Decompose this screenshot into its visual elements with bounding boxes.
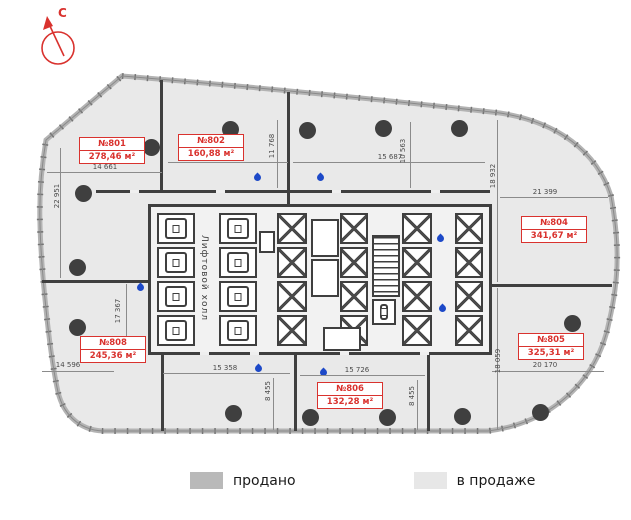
elevator-shaft-icon xyxy=(455,247,483,278)
door-opening xyxy=(250,352,259,355)
dimension-label: 22 951 xyxy=(53,161,61,231)
dimension-line xyxy=(300,375,425,376)
unit-number: №801 xyxy=(80,138,144,151)
unit-label-805[interactable]: №805 325,31 м² xyxy=(518,333,584,360)
wall-802-804 xyxy=(287,92,290,204)
service-room xyxy=(311,259,339,297)
door-opening xyxy=(130,190,139,193)
dimension-line xyxy=(417,380,418,430)
dimension-label: 18 059 xyxy=(494,326,502,396)
column-dot xyxy=(69,319,86,336)
column-dot xyxy=(454,408,471,425)
stairs xyxy=(372,235,400,297)
elevator-core: Лифтовой холл xyxy=(148,204,492,355)
door-opening xyxy=(340,352,349,355)
dimension-label: 21 399 xyxy=(495,188,595,196)
elevator-shaft-icon xyxy=(277,281,307,312)
legend-item-for-sale: в продаже xyxy=(414,472,536,489)
elevator-shaft-icon xyxy=(402,315,432,346)
dimension-label: 11 768 xyxy=(268,116,276,176)
unit-area: 278,46 м² xyxy=(80,151,144,163)
unit-label-802[interactable]: №802 160,88 м² xyxy=(178,134,244,161)
dimension-label: 20 170 xyxy=(495,361,595,369)
unit-label-808[interactable]: №808 245,36 м² xyxy=(80,336,146,363)
unit-area: 245,36 м² xyxy=(81,350,145,362)
wall-801-808 xyxy=(42,280,150,283)
elevator-car-icon xyxy=(219,247,257,278)
dimension-label: 15 358 xyxy=(180,364,270,372)
unit-label-806[interactable]: №806 132,28 м² xyxy=(317,382,383,409)
unit-area: 132,28 м² xyxy=(318,396,382,408)
wall-801-802 xyxy=(160,80,163,192)
dimension-line xyxy=(497,120,498,282)
elevator-shaft-icon xyxy=(277,247,307,278)
dimension-line xyxy=(500,197,608,198)
elevator-car-icon xyxy=(157,213,195,244)
dimension-line xyxy=(492,371,604,372)
column-dot xyxy=(75,185,92,202)
dimension-line xyxy=(273,378,274,430)
elevator-shaft-icon xyxy=(402,281,432,312)
unit-label-804[interactable]: №804 341,67 м² xyxy=(521,216,587,243)
elevator-car-icon xyxy=(219,281,257,312)
unit-number: №806 xyxy=(318,383,382,396)
elevator-car-icon xyxy=(157,315,195,346)
wall-806-805 xyxy=(427,355,430,431)
elevator-shaft-icon xyxy=(340,281,368,312)
dimension-label: 14 661 xyxy=(60,163,150,171)
column-dot xyxy=(375,120,392,137)
door-opening xyxy=(332,190,341,193)
unit-label-801[interactable]: №801 278,46 м² xyxy=(79,137,145,164)
for-sale-swatch xyxy=(414,472,447,489)
column-dot xyxy=(379,409,396,426)
wall-808-lower xyxy=(161,355,164,431)
elevator-bank xyxy=(157,213,195,346)
elevator-shaft-bank xyxy=(402,213,432,346)
column-dot xyxy=(69,259,86,276)
dimension-line xyxy=(47,172,162,173)
door-opening xyxy=(200,352,209,355)
legend: продано в продаже xyxy=(190,472,535,489)
elevator-shaft-icon xyxy=(455,315,483,346)
compass-north-label: С xyxy=(58,6,67,20)
legend-label-for-sale: в продаже xyxy=(457,473,536,489)
dimension-label: 8 455 xyxy=(408,368,416,424)
dimension-label: 15 687 xyxy=(345,153,435,161)
unit-number: №805 xyxy=(519,334,583,347)
sold-swatch xyxy=(190,472,223,489)
compass-rose xyxy=(22,4,92,76)
elevator-shaft-bank xyxy=(277,213,307,346)
service-room xyxy=(311,219,339,257)
column-dot xyxy=(564,315,581,332)
elevator-car-icon xyxy=(157,247,195,278)
elevator-shaft-icon xyxy=(455,213,483,244)
compass: С xyxy=(22,4,92,76)
elevator-bank xyxy=(219,213,257,346)
service-room xyxy=(259,231,275,253)
elevator-hall-label: Лифтовой холл xyxy=(197,233,209,323)
door-opening xyxy=(216,190,225,193)
elevator-shaft-bank xyxy=(455,213,483,346)
column-dot xyxy=(299,122,316,139)
floor-plan: Лифтовой холл xyxy=(0,0,631,520)
dimension-label: 15 726 xyxy=(312,366,402,374)
unit-number: №808 xyxy=(81,337,145,350)
dimension-line xyxy=(277,120,278,188)
elevator-shaft-icon xyxy=(402,247,432,278)
column-dot xyxy=(143,139,160,156)
elevator-shaft-icon xyxy=(340,247,368,278)
column-dot xyxy=(302,409,319,426)
wall-808-806 xyxy=(294,355,297,431)
dimension-line xyxy=(293,162,485,163)
dimension-label: 8 455 xyxy=(264,363,272,419)
elevator-car-icon xyxy=(157,281,195,312)
dimension-label: 10 563 xyxy=(399,121,407,181)
legend-item-sold: продано xyxy=(190,472,296,489)
dimension-label: 18 932 xyxy=(489,141,497,211)
column-dot xyxy=(225,405,242,422)
elevator-shaft-icon xyxy=(277,213,307,244)
unit-area: 341,67 м² xyxy=(522,230,586,242)
column-dot xyxy=(451,120,468,137)
elevator-shaft-icon xyxy=(455,281,483,312)
dimension-line xyxy=(42,371,114,372)
unit-number: №804 xyxy=(522,217,586,230)
unit-area: 160,88 м² xyxy=(179,148,243,160)
unit-number: №802 xyxy=(179,135,243,148)
elevator-shaft-icon xyxy=(402,213,432,244)
elevator-car-icon xyxy=(372,299,396,325)
door-opening xyxy=(431,190,440,193)
elevator-shaft-icon xyxy=(277,315,307,346)
legend-label-sold: продано xyxy=(233,473,296,489)
wall-804-805 xyxy=(492,284,612,287)
elevator-shaft-icon xyxy=(340,213,368,244)
door-opening xyxy=(420,352,429,355)
elevator-car-icon xyxy=(219,213,257,244)
column-dot xyxy=(532,404,549,421)
wc-room xyxy=(323,327,361,351)
elevator-car-icon xyxy=(219,315,257,346)
unit-area: 325,31 м² xyxy=(519,347,583,359)
